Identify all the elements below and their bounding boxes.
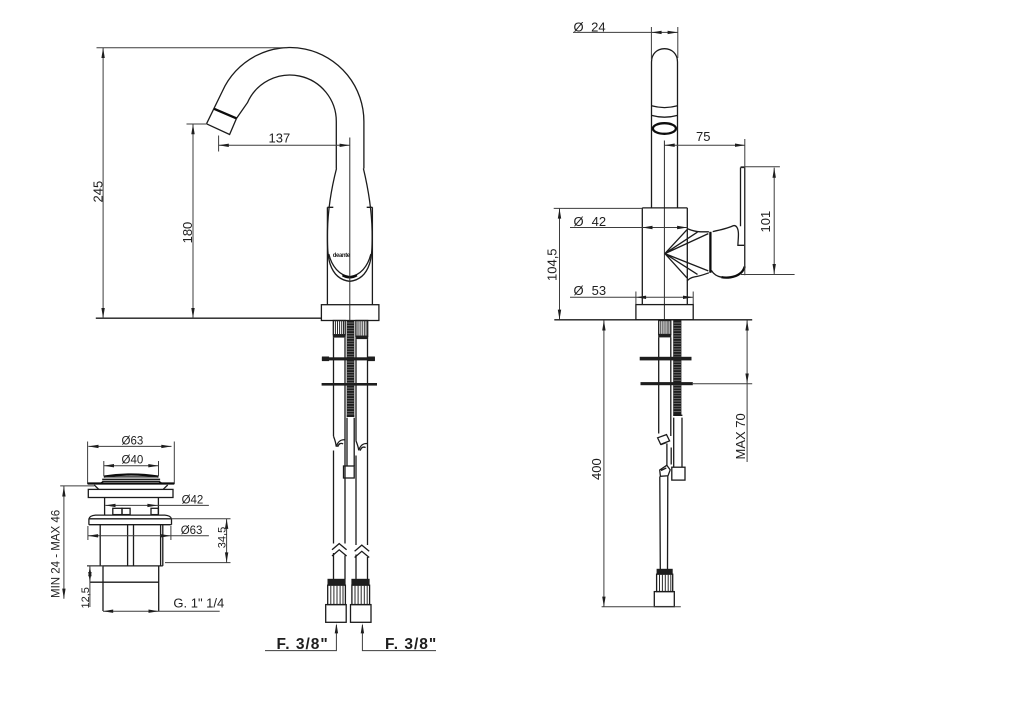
svg-text:137: 137	[269, 131, 291, 146]
svg-text:F. 3/8": F. 3/8"	[277, 636, 329, 653]
svg-text:245: 245	[90, 181, 105, 203]
svg-text:deante: deante	[333, 253, 351, 259]
svg-text:180: 180	[180, 222, 195, 244]
svg-text:MIN 24 - MAX 46: MIN 24 - MAX 46	[51, 510, 63, 598]
svg-text:104,5: 104,5	[544, 248, 559, 281]
svg-text:34,5: 34,5	[217, 527, 229, 548]
svg-text:G. 1" 1/4: G. 1" 1/4	[173, 596, 224, 611]
svg-text:MAX 70: MAX 70	[733, 413, 748, 459]
svg-text:Ø63: Ø63	[181, 525, 203, 537]
svg-text:Ø63: Ø63	[122, 435, 144, 447]
svg-text:F. 3/8": F. 3/8"	[385, 636, 437, 653]
svg-text:75: 75	[696, 129, 710, 144]
svg-text:101: 101	[758, 211, 773, 233]
svg-text:Ø42: Ø42	[182, 495, 204, 507]
svg-text:Ø40: Ø40	[122, 455, 144, 467]
svg-text:400: 400	[589, 458, 604, 480]
svg-text:12,5: 12,5	[80, 587, 92, 608]
